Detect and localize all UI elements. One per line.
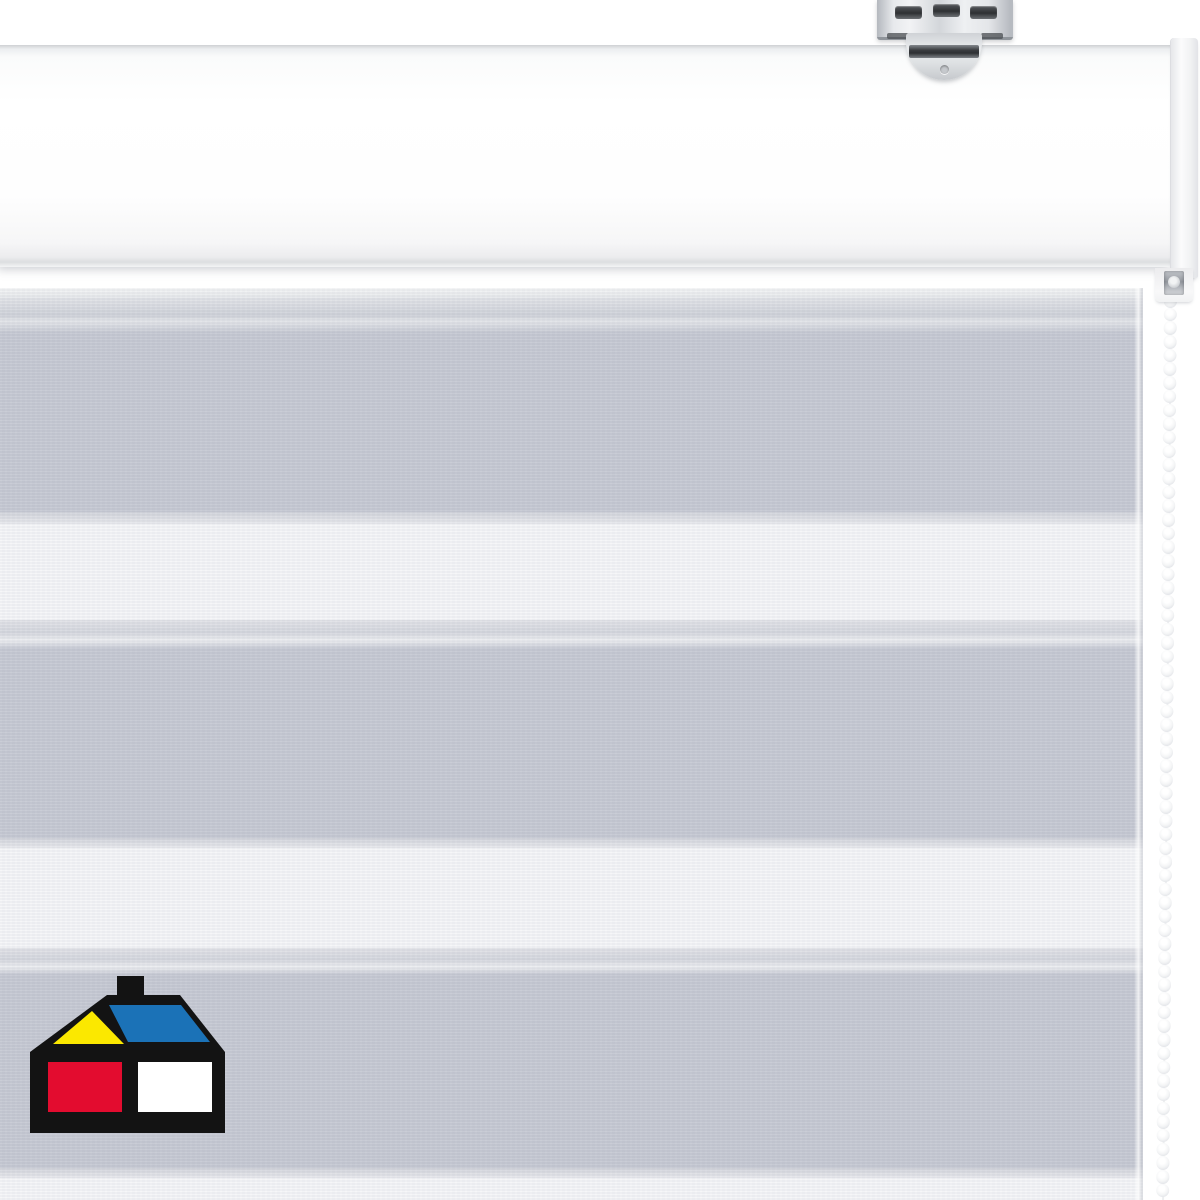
chain-bead bbox=[1157, 1074, 1171, 1088]
chain-bead bbox=[1156, 1184, 1170, 1198]
chain-bead bbox=[1157, 1088, 1171, 1102]
fabric-stripe-edge bbox=[0, 838, 1143, 848]
bracket-screw bbox=[970, 6, 997, 19]
bracket-slot bbox=[981, 33, 1003, 39]
chain-bead bbox=[1157, 1101, 1171, 1115]
chain-bead bbox=[1160, 691, 1174, 705]
chain-bead bbox=[1159, 869, 1173, 883]
chain-bead bbox=[1159, 855, 1173, 869]
chain-bead bbox=[1161, 636, 1175, 650]
chain-bead bbox=[1160, 705, 1174, 719]
chain-bead bbox=[1163, 335, 1177, 349]
chain-bead bbox=[1158, 951, 1172, 965]
chain-bead bbox=[1162, 431, 1176, 445]
chain-bead bbox=[1159, 828, 1173, 842]
fabric-stripe-roll bbox=[0, 298, 1143, 332]
chain-bead bbox=[1161, 650, 1175, 664]
logo-chimney bbox=[117, 976, 144, 998]
chain-bead bbox=[1159, 841, 1173, 855]
fabric-stripe-white bbox=[0, 848, 1143, 948]
fabric-stripe-gray bbox=[0, 332, 1143, 512]
chain-bead bbox=[1161, 609, 1175, 623]
fabric-stripe-edge bbox=[0, 512, 1143, 524]
chain-bead bbox=[1163, 349, 1177, 363]
chain-bead bbox=[1161, 540, 1175, 554]
chain-bead bbox=[1157, 1047, 1171, 1061]
chain-bead bbox=[1164, 308, 1178, 322]
bracket-screw bbox=[895, 6, 922, 19]
fabric-stripe-white bbox=[0, 1178, 1143, 1200]
chain-guide-metal bbox=[1164, 271, 1184, 295]
chain-bead bbox=[1161, 581, 1175, 595]
chain-bead bbox=[1156, 1129, 1170, 1143]
chain-bead bbox=[1156, 1115, 1170, 1129]
chain-bead bbox=[1162, 499, 1176, 513]
fabric-stripe-lead bbox=[0, 948, 1143, 974]
bead-chain[interactable] bbox=[1155, 294, 1178, 1200]
chain-bead bbox=[1160, 746, 1174, 760]
chain-bead bbox=[1163, 417, 1177, 431]
chain-bead bbox=[1162, 472, 1176, 486]
chain-bead bbox=[1162, 458, 1176, 472]
chain-bead bbox=[1159, 800, 1173, 814]
logo-white-wall bbox=[138, 1062, 212, 1112]
chain-bead bbox=[1161, 622, 1175, 636]
chain-bead bbox=[1156, 1170, 1170, 1184]
bracket-screw bbox=[933, 4, 960, 17]
chain-bead bbox=[1159, 787, 1173, 801]
chain-bead bbox=[1158, 978, 1172, 992]
chain-bead bbox=[1162, 486, 1176, 500]
chain-bead bbox=[1163, 390, 1177, 404]
fabric-stripe-lead bbox=[0, 620, 1143, 648]
chain-bead bbox=[1158, 937, 1172, 951]
chain-bead bbox=[1162, 513, 1176, 527]
headrail-end-cap bbox=[1171, 38, 1198, 278]
chain-bead bbox=[1161, 554, 1175, 568]
chain-bead bbox=[1157, 1019, 1171, 1033]
chain-bead bbox=[1160, 677, 1174, 691]
chain-bead bbox=[1163, 362, 1177, 376]
chain-bead bbox=[1157, 1060, 1171, 1074]
chain-bead bbox=[1158, 896, 1172, 910]
chain-bead bbox=[1158, 910, 1172, 924]
chain-bead bbox=[1160, 759, 1174, 773]
bracket-clamp-slot bbox=[909, 45, 979, 58]
fabric-stripe-white bbox=[0, 524, 1143, 620]
chain-bead bbox=[1158, 965, 1172, 979]
chain-mechanism bbox=[1155, 268, 1193, 302]
homecenter-house-logo bbox=[28, 973, 228, 1135]
logo-red-wall bbox=[48, 1062, 122, 1112]
fabric-stripe-gray bbox=[0, 648, 1143, 838]
chain-bead bbox=[1162, 527, 1176, 541]
chain-bead bbox=[1163, 376, 1177, 390]
fabric-stripe-edge bbox=[0, 1168, 1143, 1178]
chain-bead bbox=[1156, 1156, 1170, 1170]
fabric-stripe-top-edge bbox=[0, 288, 1143, 298]
chain-bead bbox=[1161, 568, 1175, 582]
chain-bead bbox=[1160, 732, 1174, 746]
chain-bead bbox=[1163, 321, 1177, 335]
chain-bead bbox=[1162, 444, 1176, 458]
bracket-clamp-hole bbox=[940, 65, 949, 74]
product-photo bbox=[0, 0, 1200, 1200]
chain-bead bbox=[1158, 882, 1172, 896]
headrail-cassette bbox=[0, 45, 1174, 267]
chain-bead bbox=[1158, 924, 1172, 938]
chain-bead bbox=[1163, 403, 1177, 417]
chain-bead bbox=[1156, 1143, 1170, 1157]
chain-bead bbox=[1160, 718, 1174, 732]
chain-bead bbox=[1157, 1006, 1171, 1020]
fabric-right-edge bbox=[1134, 288, 1143, 1200]
chain-bead bbox=[1160, 663, 1174, 677]
chain-bead bbox=[1159, 814, 1173, 828]
chain-bead bbox=[1158, 992, 1172, 1006]
chain-bead bbox=[1161, 595, 1175, 609]
chain-bead bbox=[1159, 773, 1173, 787]
chain-bead bbox=[1157, 1033, 1171, 1047]
